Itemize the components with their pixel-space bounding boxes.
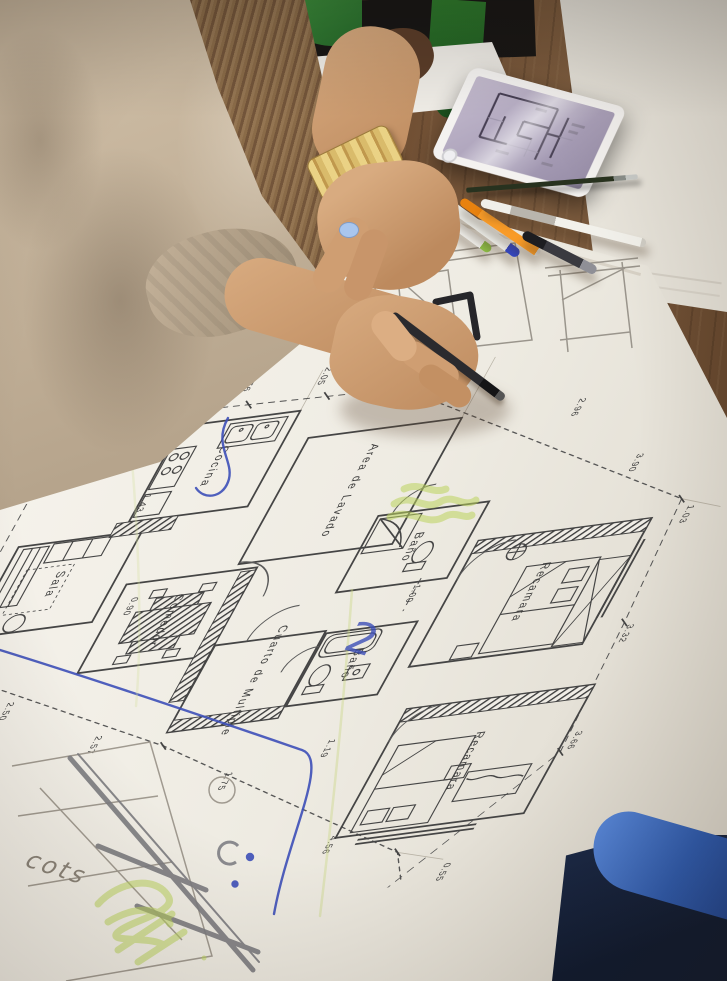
highlighter-green-marks [98, 416, 476, 962]
photo-scene: Cocina Area de Lavado Baño Recamara Sala… [0, 0, 727, 981]
blue-nail [339, 222, 359, 238]
bold-gray-strokes [70, 754, 259, 970]
